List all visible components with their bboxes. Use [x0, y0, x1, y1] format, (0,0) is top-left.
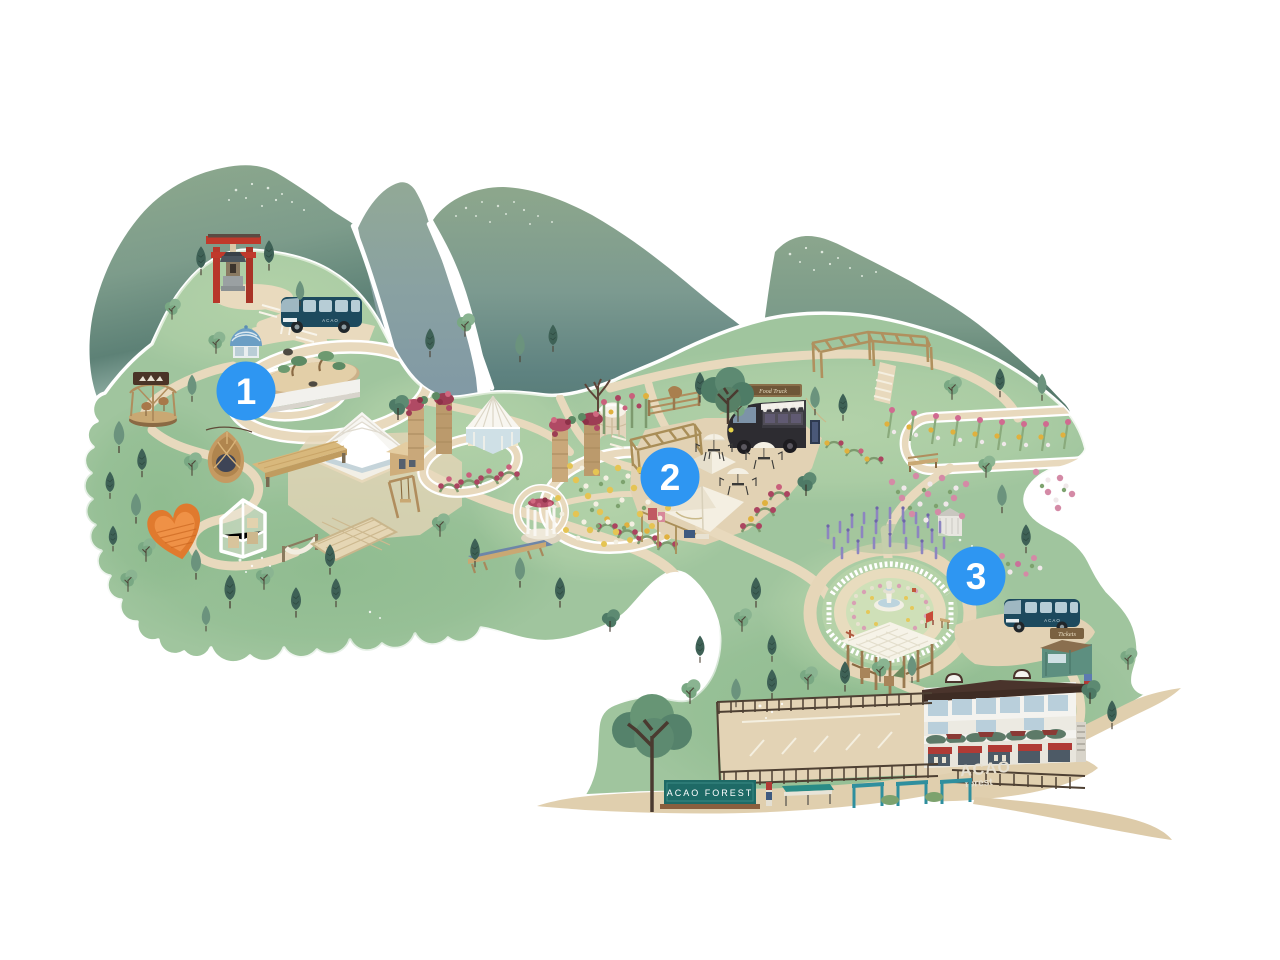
svg-text:ACAO FOREST: ACAO FOREST [667, 788, 754, 798]
svg-text:2: 2 [660, 457, 681, 498]
svg-text:A C A O: A C A O [1044, 618, 1060, 623]
svg-text:A C A O: A C A O [322, 318, 338, 323]
svg-text:Food Truck: Food Truck [758, 389, 787, 395]
svg-text:3: 3 [966, 556, 987, 597]
svg-text:1: 1 [236, 371, 257, 412]
svg-text:Tickets: Tickets [1058, 631, 1077, 638]
